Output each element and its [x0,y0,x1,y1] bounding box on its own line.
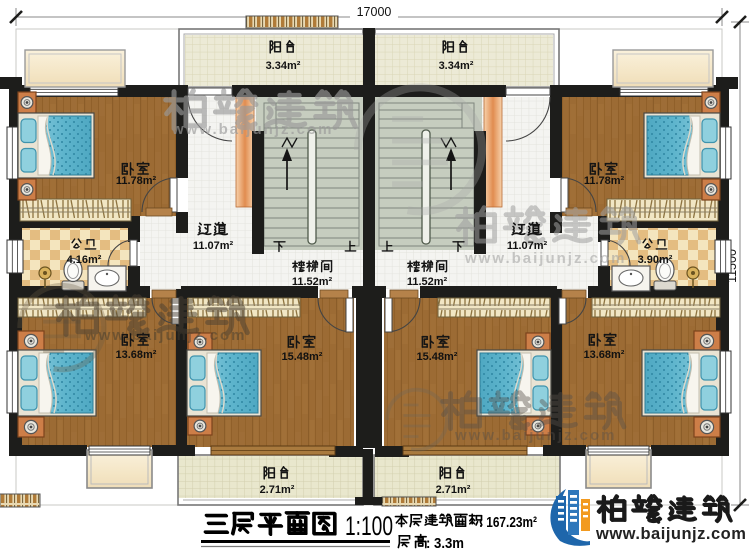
svg-text:1:100: 1:100 [345,511,393,541]
svg-text:17000: 17000 [357,5,392,19]
svg-text:www.baijunjz.com: www.baijunjz.com [454,427,616,444]
svg-text:11.78m²: 11.78m² [584,175,625,187]
svg-text:3.34m²: 3.34m² [266,60,301,72]
svg-text:3.34m²: 3.34m² [439,60,474,72]
svg-text:2.71m²: 2.71m² [260,484,295,496]
svg-text:www.baijunjz.com: www.baijunjz.com [171,121,333,138]
svg-text:www.baijunjz.com: www.baijunjz.com [595,525,746,543]
svg-text:2.71m²: 2.71m² [436,484,471,496]
svg-text:www.baijunjz.com: www.baijunjz.com [464,250,626,267]
svg-text:www.baijunjz.com: www.baijunjz.com [84,327,246,344]
svg-text:11.52m²: 11.52m² [407,276,448,288]
svg-text:15.48m²: 15.48m² [282,351,323,363]
svg-text:13.68m²: 13.68m² [116,349,157,361]
svg-text:11.07m²: 11.07m² [507,240,548,252]
svg-text:: 3.3m: : 3.3m [426,535,464,552]
svg-text:11.52m²: 11.52m² [292,276,333,288]
svg-text:: 167.23m²: : 167.23m² [479,514,537,531]
svg-text:11.78m²: 11.78m² [116,175,157,187]
svg-text:11.07m²: 11.07m² [193,240,234,252]
svg-text:13.68m²: 13.68m² [584,349,625,361]
svg-text:4.16m²: 4.16m² [67,254,102,266]
svg-text:15.48m²: 15.48m² [417,351,458,363]
svg-text:3.90m²: 3.90m² [638,254,673,266]
